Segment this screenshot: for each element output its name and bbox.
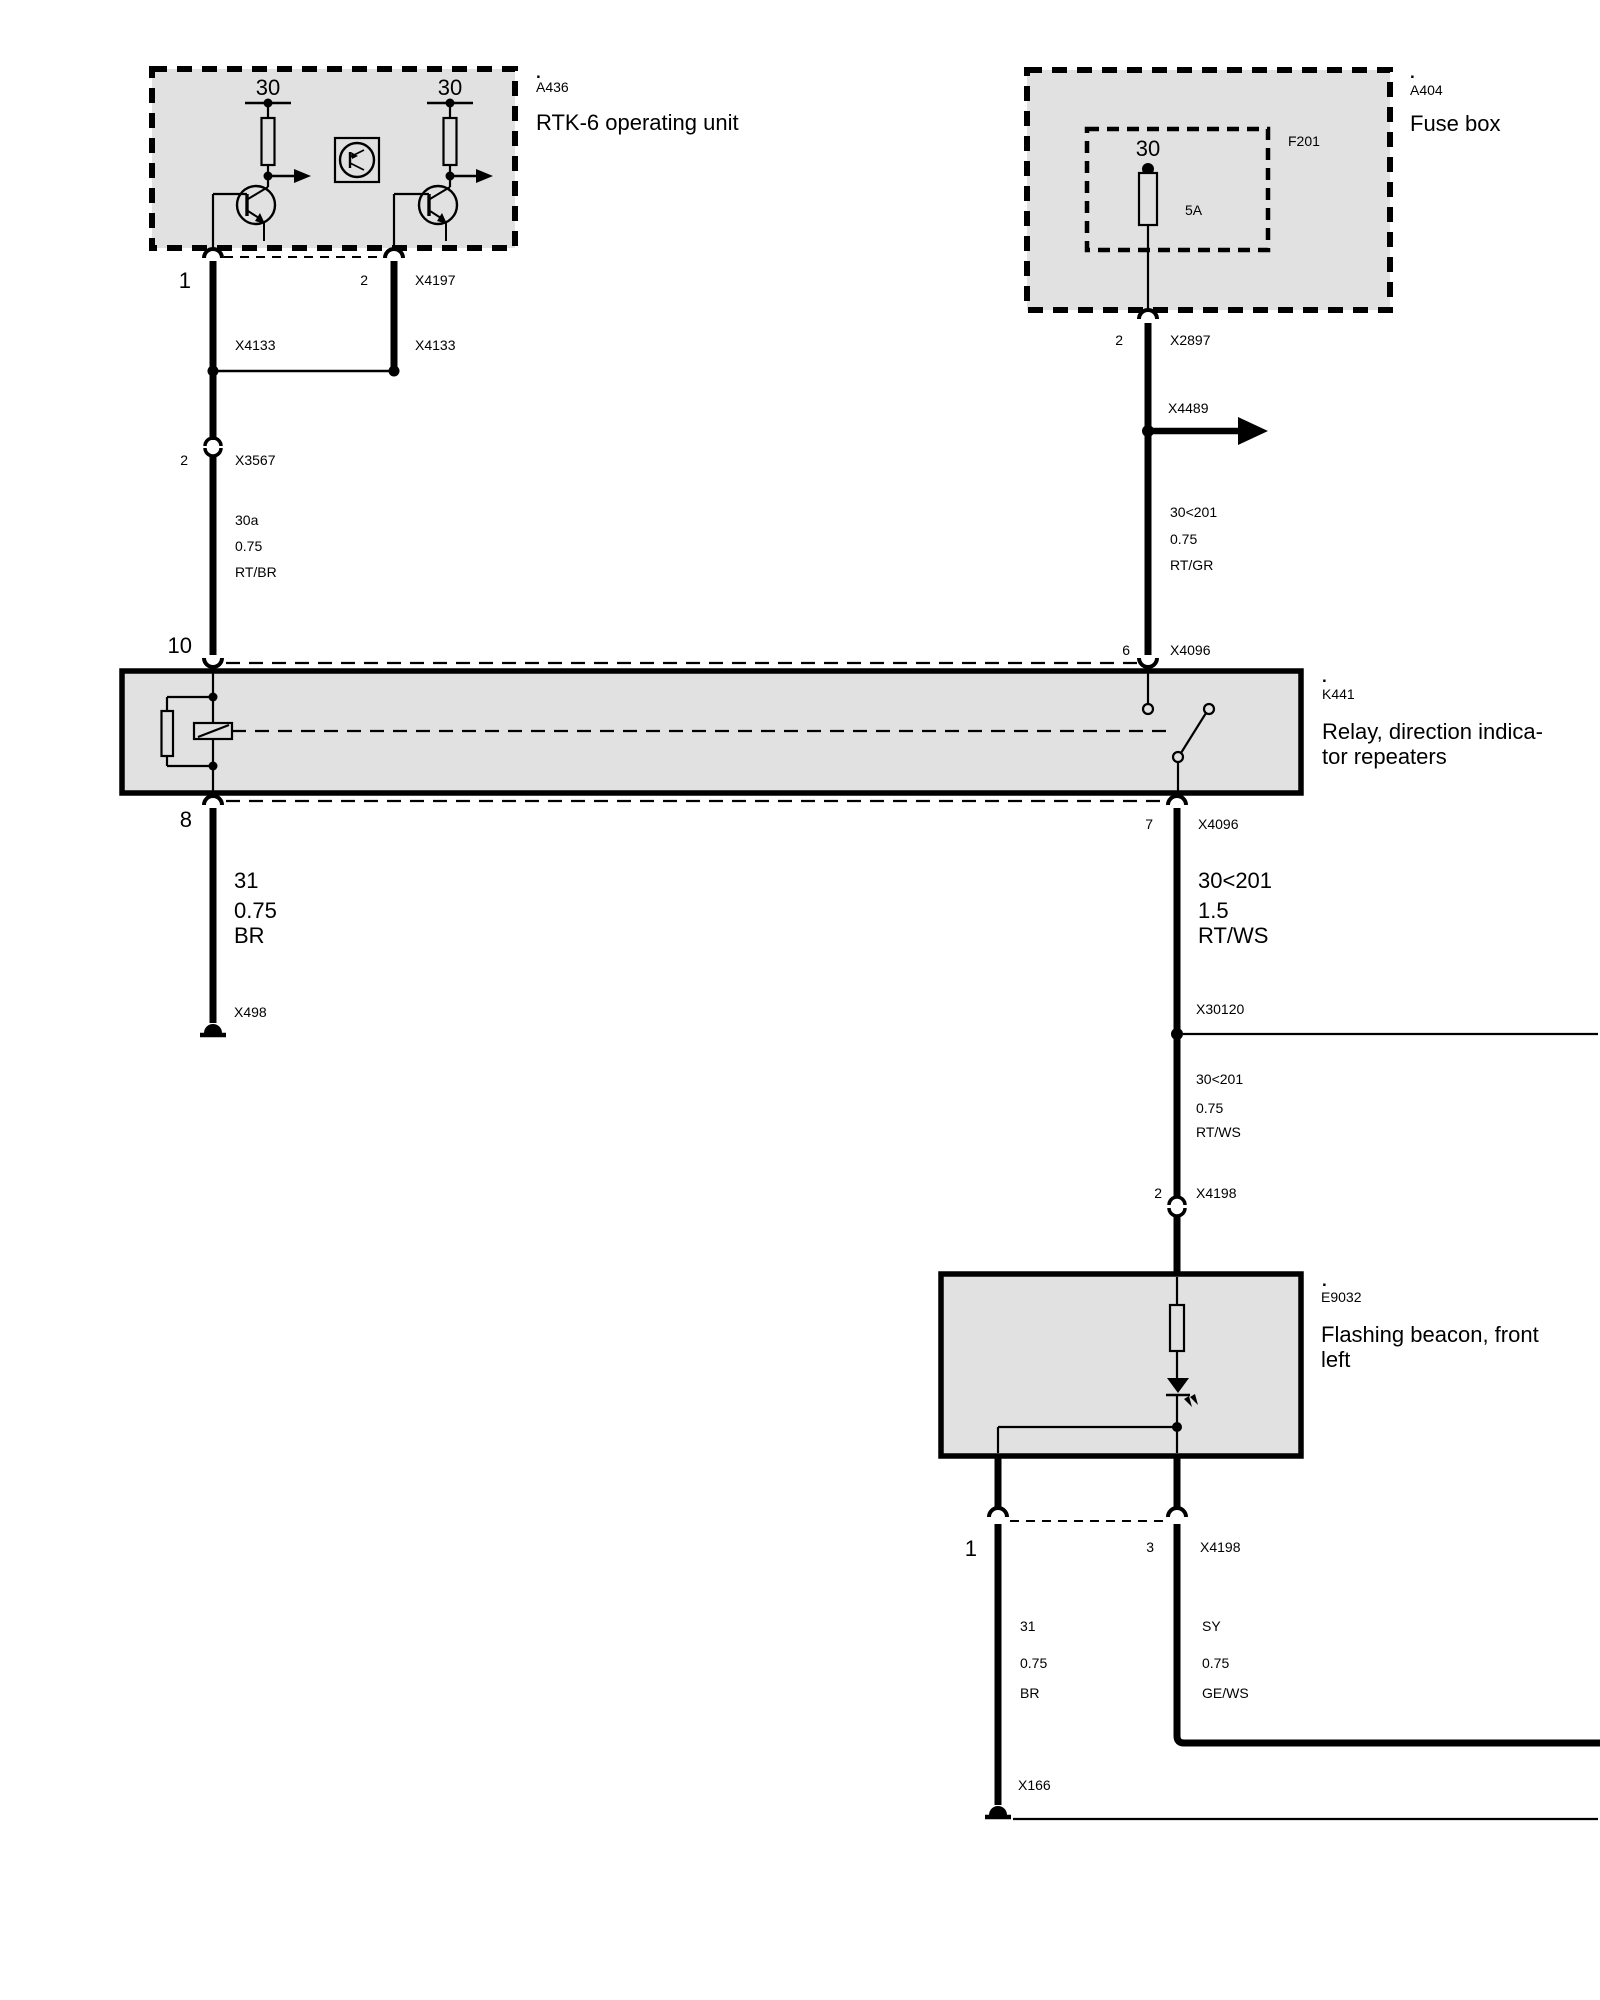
x4198-label: X4198: [1196, 1185, 1237, 1201]
wire-color-label: RT/GR: [1170, 557, 1213, 573]
fusebox-id-label: A404: [1410, 82, 1443, 98]
wire-circuit-label: 30a: [235, 512, 259, 528]
relay-pin-10-label: 10: [168, 633, 192, 658]
wire-color-label: RT/WS: [1196, 1124, 1241, 1140]
wire-circuit-label: 30<201: [1196, 1071, 1243, 1087]
wire-gauge-label: 0.75: [1020, 1655, 1047, 1671]
wire-color-label: BR: [1020, 1685, 1039, 1701]
fuse-carrier-label: F201: [1288, 133, 1320, 149]
x2897-pin-label: 2: [1115, 332, 1123, 348]
x30120-label: X30120: [1196, 1001, 1244, 1017]
relay-conn-x4096-label: X4096: [1170, 642, 1211, 658]
resistor-symbol: [444, 118, 457, 165]
wire-color-label: RT/WS: [1198, 923, 1268, 948]
connector-x4197-label: X4197: [415, 272, 456, 288]
rtk6-title: RTK-6 operating unit: [536, 110, 739, 135]
pin-2-label: 2: [360, 272, 368, 288]
relay-outline: [122, 671, 1301, 793]
pin-1-label: 1: [179, 268, 191, 293]
fusebox-outline: [1027, 70, 1390, 310]
wire-gauge-label: 0.75: [1170, 531, 1197, 547]
wire-circuit-label: 31: [1020, 1618, 1036, 1634]
relay-pin-8-label: 8: [180, 807, 192, 832]
x166-label: X166: [1018, 1777, 1051, 1793]
wire-circuit-label: 30<201: [1198, 868, 1272, 893]
wire-color-label: RT/BR: [235, 564, 277, 580]
wire-circuit-label: 30<201: [1170, 504, 1217, 520]
terminal-30-label: 30: [256, 75, 280, 100]
x2897-label: X2897: [1170, 332, 1211, 348]
relay-box: [122, 658, 1301, 805]
rtk6-id-label: A436: [536, 79, 569, 95]
wire-gauge-label: 1.5: [1198, 898, 1229, 923]
wire-color-label: GE/WS: [1202, 1685, 1249, 1701]
beacon-title-line1: Flashing beacon, front: [1321, 1322, 1539, 1347]
x4489-label: X4489: [1168, 400, 1209, 416]
relay-pin-6-label: 6: [1122, 642, 1130, 658]
beacon-resistor-icon: [1170, 1305, 1184, 1351]
resistor-symbol: [262, 118, 275, 165]
x4198-label: X4198: [1200, 1539, 1241, 1555]
x3567-label: X3567: [235, 452, 276, 468]
terminal-30-label: 30: [438, 75, 462, 100]
fusebox-ref-dot: .: [1410, 63, 1415, 82]
x4198-pin-label: 2: [1154, 1185, 1162, 1201]
splice-x4133-right-label: X4133: [415, 337, 456, 353]
beacon-pin-1-label: 1: [965, 1536, 977, 1561]
x498-label: X498: [234, 1004, 267, 1020]
relay-pin-7-label: 7: [1145, 816, 1153, 832]
relay-conn-x4096-label: X4096: [1198, 816, 1239, 832]
beacon-title-line2: left: [1321, 1347, 1350, 1372]
fuse-rating-label: 5A: [1185, 202, 1203, 218]
fusebox-title: Fuse box: [1410, 111, 1501, 136]
splice-x4133-left-label: X4133: [235, 337, 276, 353]
relay-title-line1: Relay, direction indica-: [1322, 719, 1543, 744]
wire-gauge-label: 0.75: [1202, 1655, 1229, 1671]
wiring-diagram-page: 30 30 . A436 RTK-6 operating unit 1 2 X4…: [0, 0, 1600, 2000]
wire-gauge-label: 0.75: [234, 898, 277, 923]
relay-id-label: K441: [1322, 686, 1355, 702]
wire-circuit-label: SY: [1202, 1618, 1221, 1634]
wire-color-label: BR: [234, 923, 265, 948]
beacon-ref-dot: .: [1322, 1271, 1327, 1290]
beacon-outline: [941, 1274, 1301, 1456]
fuse-icon: [1139, 173, 1157, 225]
beacon-id-label: E9032: [1321, 1289, 1362, 1305]
wire-gauge-label: 0.75: [1196, 1100, 1223, 1116]
fuse-box: F201 30 5A: [1027, 70, 1390, 311]
relay-resistor-icon: [162, 711, 174, 756]
flashing-beacon-box: [941, 1274, 1301, 1456]
wire-gauge-label: 0.75: [235, 538, 262, 554]
relay-ref-dot: .: [1322, 667, 1327, 686]
wire-circuit-label: 31: [234, 868, 258, 893]
x3567-pin-label: 2: [180, 452, 188, 468]
fuse-terminal-30-label: 30: [1136, 136, 1160, 161]
relay-title-line2: tor repeaters: [1322, 744, 1447, 769]
relay-coil-icon: [194, 723, 232, 739]
beacon-pin-3-label: 3: [1146, 1539, 1154, 1555]
rtk6-operating-unit-box: 30 30: [152, 69, 515, 251]
